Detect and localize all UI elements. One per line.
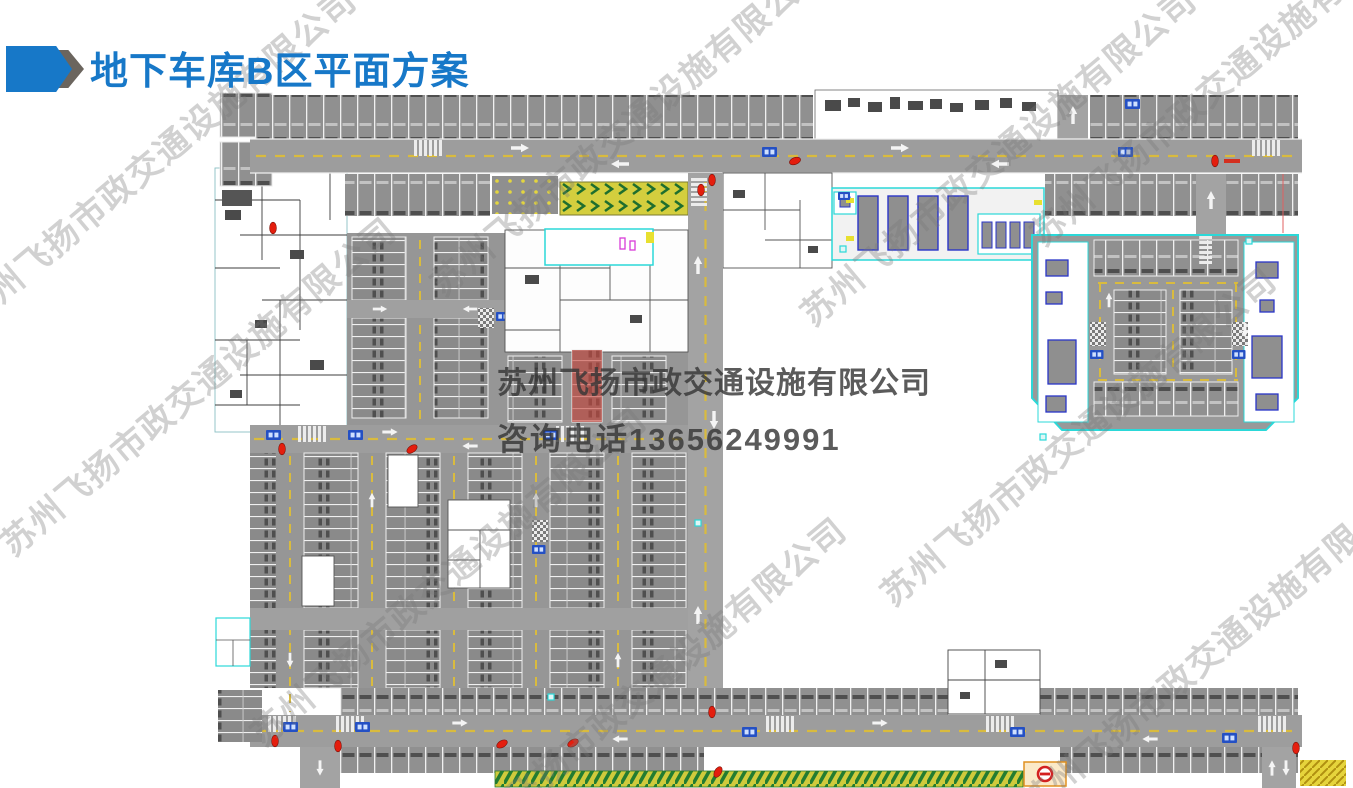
floor-plan-svg bbox=[0, 0, 1353, 788]
mid-road bbox=[250, 425, 688, 453]
lower-field bbox=[216, 453, 688, 712]
upper-field bbox=[347, 229, 688, 425]
top-parking-row bbox=[255, 90, 1298, 139]
no-entry-sign bbox=[1038, 767, 1052, 781]
slide: 苏州飞扬市政交通设施有限公司 苏州飞扬市政交通设施有限公司 苏州飞扬市政交通设施… bbox=[0, 0, 1353, 788]
right-parking-hall bbox=[1032, 235, 1298, 430]
left-building bbox=[215, 168, 347, 432]
green-landscape-strip bbox=[495, 771, 1023, 787]
vertical-road bbox=[688, 173, 723, 718]
electrical-room bbox=[832, 188, 1044, 260]
entrance-ramp bbox=[560, 182, 688, 215]
mid-rooms bbox=[723, 173, 832, 268]
highlighted-stall-column bbox=[572, 350, 602, 422]
